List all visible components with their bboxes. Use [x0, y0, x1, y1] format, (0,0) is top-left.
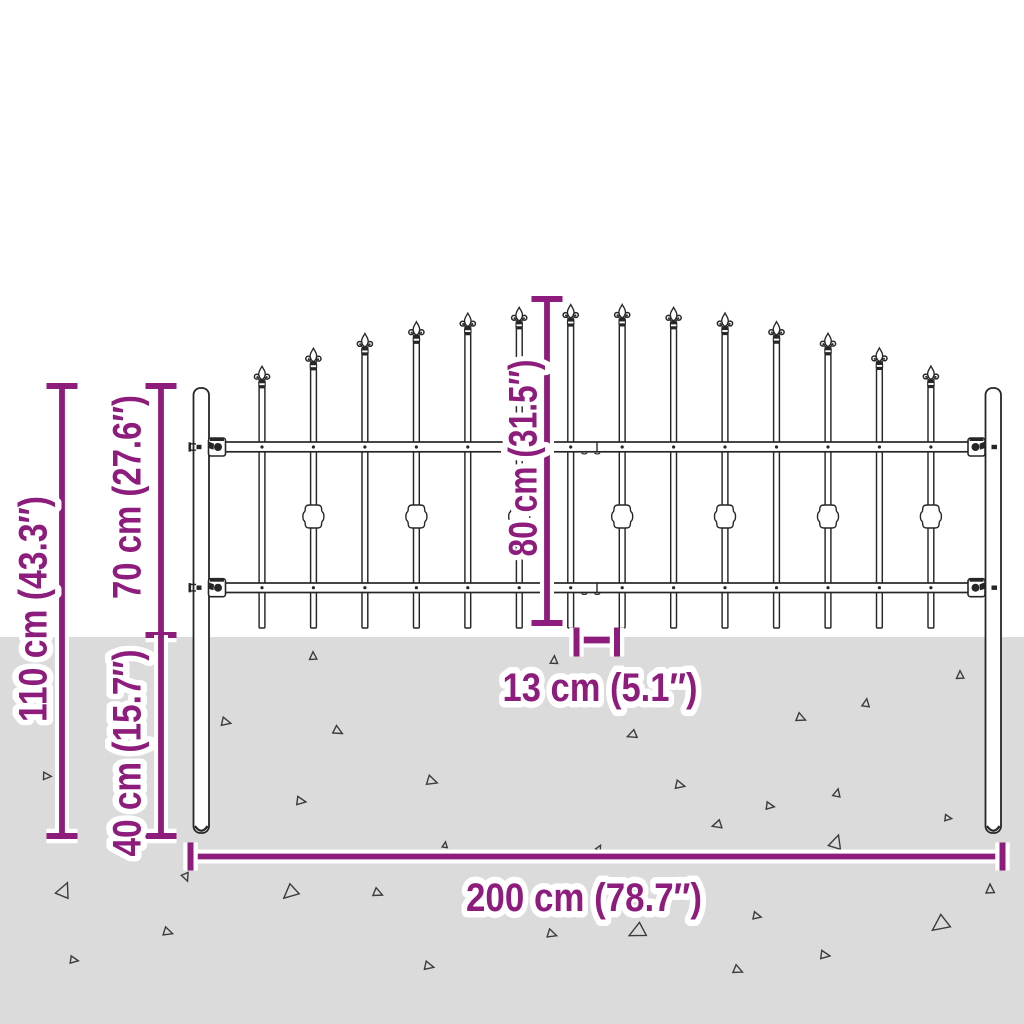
- svg-text:13 cm (5.1″): 13 cm (5.1″): [503, 666, 698, 710]
- svg-text:200 cm (78.7″): 200 cm (78.7″): [466, 876, 702, 920]
- svg-text:110 cm (43.3″): 110 cm (43.3″): [12, 496, 56, 722]
- svg-text:80 cm (31.5″): 80 cm (31.5″): [502, 360, 546, 557]
- svg-text:40 cm (15.7″): 40 cm (15.7″): [106, 650, 150, 857]
- svg-text:70 cm (27.6″): 70 cm (27.6″): [106, 395, 150, 599]
